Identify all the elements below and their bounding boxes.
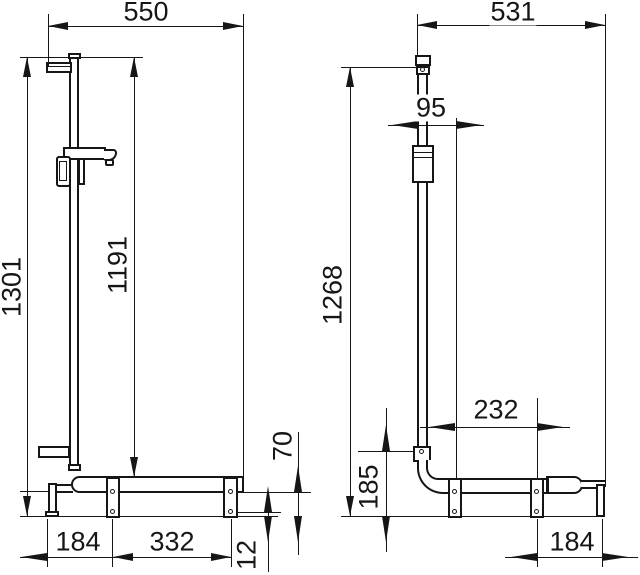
slider-groove <box>414 157 432 158</box>
wall-bracket-top-line <box>48 66 70 67</box>
grab-bar-end-cap <box>546 476 583 494</box>
ext-line <box>238 492 311 493</box>
ext-line <box>537 519 538 567</box>
floor-line <box>20 516 278 517</box>
arrowhead <box>264 486 272 512</box>
arrowhead <box>130 57 138 77</box>
dim-line <box>27 57 28 516</box>
rail-top-cap <box>68 53 81 59</box>
ext-line <box>605 14 606 487</box>
arrowhead <box>382 425 390 451</box>
dim-front-width-label: 550 <box>122 0 169 26</box>
dim-front-rail-height-label: 1191 <box>105 235 132 295</box>
arrowhead <box>429 423 455 431</box>
screw-hole <box>452 489 457 494</box>
shower-rail <box>69 56 79 464</box>
dim-front-plate-spacing-label: 332 <box>148 529 195 556</box>
height-slider-inner <box>59 161 67 181</box>
arrowhead <box>264 516 272 542</box>
dim-side-overall-height-label: 1268 <box>320 264 347 326</box>
ext-line <box>238 512 281 513</box>
arrowhead <box>223 22 243 30</box>
dim-side-bracket-height-label: 185 <box>356 463 383 510</box>
arrowhead <box>346 67 354 87</box>
dim-line <box>350 67 351 516</box>
screw-hole <box>420 67 425 72</box>
ext-line <box>243 14 244 491</box>
dim-side-rail-offset-label: 95 <box>415 95 447 122</box>
dim-line <box>134 57 135 477</box>
arrowhead <box>585 21 605 29</box>
technical-drawing: 550 1301 1191 70 12 184 332 531 95 1268 … <box>0 0 640 575</box>
arrowhead <box>21 553 47 561</box>
wall-foot-side <box>596 484 605 517</box>
ext-line <box>20 491 48 492</box>
end-cap-seam <box>548 478 549 492</box>
screw-hole <box>419 449 424 454</box>
dim-front-base-offset-label: 12 <box>234 539 261 571</box>
wall-bracket-top <box>46 62 72 73</box>
ext-line <box>456 118 457 478</box>
arrowhead <box>23 57 31 77</box>
screw-hole <box>110 489 115 494</box>
grab-bar <box>71 476 244 493</box>
ext-line <box>537 398 538 478</box>
ext-line <box>47 519 48 567</box>
arrowhead <box>23 496 31 516</box>
screw-hole <box>228 489 233 494</box>
arrowhead <box>113 553 133 561</box>
wall-bracket-lower <box>38 446 70 458</box>
height-slider-strip <box>78 158 85 185</box>
dim-side-plate-spacing-label: 232 <box>472 397 519 424</box>
screw-hole <box>110 509 115 514</box>
rail-top-cap-side <box>415 55 431 66</box>
arrowhead <box>211 553 231 561</box>
dim-front-bar-clearance-label: 70 <box>270 430 297 462</box>
arrowhead <box>48 22 68 30</box>
arrowhead <box>456 121 482 129</box>
elbow-inner <box>426 460 447 480</box>
dim-front-overall-height-label: 1301 <box>0 256 26 318</box>
arrowhead <box>417 21 437 29</box>
screw-hole <box>228 509 233 514</box>
dim-side-plate-to-end-label: 184 <box>548 529 595 556</box>
screw-hole <box>534 509 539 514</box>
ref-line <box>20 57 143 58</box>
arrowhead <box>294 466 302 492</box>
arrowhead <box>382 516 390 542</box>
wall-foot <box>48 483 57 513</box>
shower-holder-nub <box>105 159 114 166</box>
height-slider-side <box>412 145 434 183</box>
dim-side-width-label: 531 <box>489 0 536 26</box>
screw-hole <box>534 489 539 494</box>
rail-bottom-cap <box>68 464 81 471</box>
arrowhead <box>294 516 302 542</box>
arrowhead <box>602 553 628 561</box>
floor-line <box>341 516 605 517</box>
screw-hole <box>452 509 457 514</box>
arrowhead <box>130 457 138 477</box>
arrowhead <box>392 121 418 129</box>
arrowhead <box>511 553 537 561</box>
dim-front-foot-to-plate-label: 184 <box>54 529 101 556</box>
arrowhead <box>537 423 563 431</box>
slider-groove <box>414 152 432 153</box>
